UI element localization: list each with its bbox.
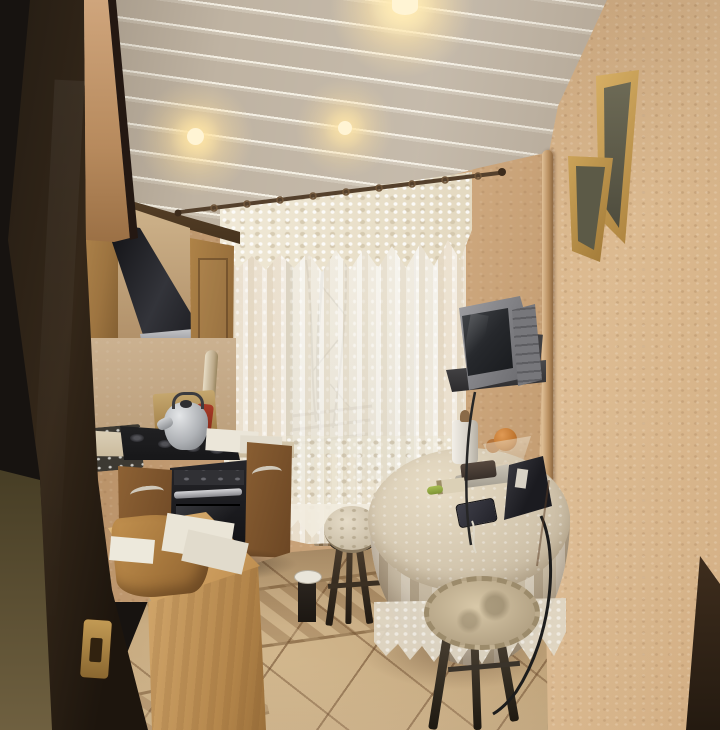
ceiling-light-icon (392, 0, 418, 15)
corner-stool (298, 578, 316, 622)
base-cabinet-door (244, 438, 294, 560)
cabinet-handle (251, 464, 282, 481)
kitchen-photo (0, 0, 720, 730)
door-latch-plate (80, 619, 112, 679)
corner-pipe (542, 150, 553, 486)
tv-screen (459, 308, 513, 376)
ceiling-light-icon (187, 128, 204, 145)
towel-holder-knob (460, 410, 470, 422)
kettle-lid (180, 400, 192, 408)
paper-towel-roll (452, 420, 478, 464)
white-dish (294, 570, 322, 584)
fringed-stool-cushion (424, 576, 540, 650)
oven-control-panel (174, 470, 244, 485)
ceiling-light-icon (338, 121, 352, 135)
latch-slot (89, 638, 103, 663)
papers (109, 536, 155, 564)
burner-icon (130, 434, 144, 442)
telephone-label (515, 468, 529, 488)
kettle (164, 402, 208, 450)
cabinet-handle (129, 484, 164, 502)
cabinet-door-panel (198, 258, 228, 344)
screen-reflection (463, 313, 488, 359)
oven-handle (174, 488, 242, 499)
